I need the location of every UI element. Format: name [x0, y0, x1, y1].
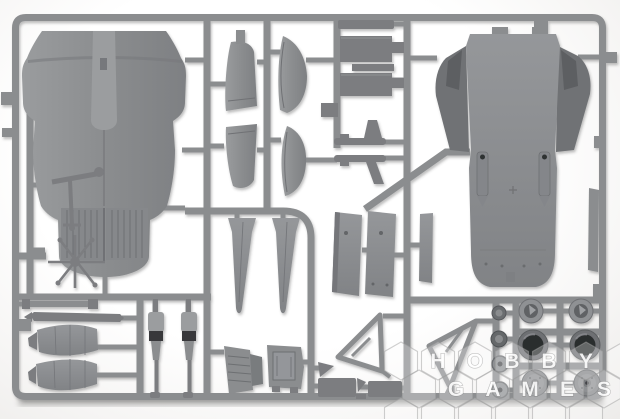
pylon-missile-parts: [334, 120, 386, 184]
gear-bay-bracket-part: [267, 345, 304, 393]
narrow-flap-panel: [419, 213, 433, 283]
narrow-side-panel-part: [588, 188, 599, 272]
frame-tab: [593, 284, 606, 297]
gear-bay-bracket-part: [224, 346, 263, 394]
exhaust-nozzle-petal-parts: [14, 319, 98, 390]
vertical-stabilizer-half-part: [225, 30, 257, 111]
sprue: [1, 17, 617, 399]
landing-gear-strut-part: [148, 299, 164, 398]
rudder-half-part: [281, 126, 306, 196]
inner-flap-panel-parts: [332, 211, 433, 297]
wheel-hub-part: [519, 299, 543, 323]
vertical-stabilizer-half-part: [226, 124, 257, 188]
wheel-hub-part: [569, 299, 593, 323]
upper-fuselage-half-part: [22, 31, 186, 277]
watermark-letter: Y: [579, 350, 593, 373]
watermark-letter: B: [504, 350, 519, 373]
canopy-spine: [91, 31, 117, 130]
watermark-letter: S: [597, 378, 611, 401]
gear-retraction-frame-part: [338, 315, 390, 377]
frame-tab: [1, 92, 15, 105]
sprue-photo-svg: H O B B Y G A M E S: [0, 0, 620, 419]
watermark-letter: G: [448, 378, 464, 401]
airbrake-box-parts: [321, 20, 404, 117]
watermark-letter: B: [541, 350, 556, 373]
frame-tab: [2, 128, 13, 137]
watermark-letter: O: [467, 350, 483, 373]
frame-tab: [603, 52, 617, 63]
watermark-letter: A: [485, 378, 500, 401]
watermark-letter: E: [560, 378, 574, 401]
frame-tab: [594, 136, 605, 148]
sprue-photo: H O B B Y G A M E S: [0, 0, 620, 419]
rudder-half-part: [278, 36, 307, 113]
watermark-letter: H: [430, 350, 445, 373]
small-wedge-part: [318, 362, 334, 377]
push-rod-parts: [22, 299, 124, 322]
drop-tank-half-parts: [228, 218, 300, 313]
watermark-letter: M: [521, 378, 539, 401]
landing-gear-strut-part: [181, 299, 197, 398]
